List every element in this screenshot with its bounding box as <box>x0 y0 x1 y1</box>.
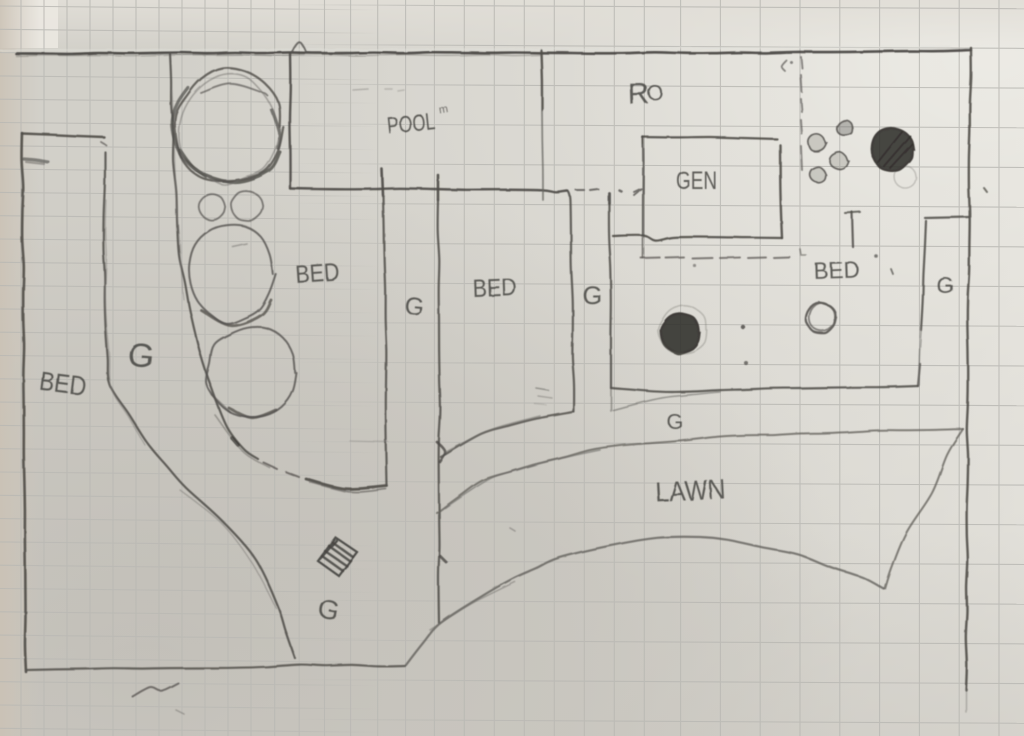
svg-text:BED: BED <box>294 258 340 289</box>
svg-text:G: G <box>403 292 425 322</box>
svg-text:LAWN: LAWN <box>655 473 727 508</box>
svg-text:BED: BED <box>472 273 517 303</box>
svg-text:G: G <box>126 336 156 376</box>
svg-text:BED: BED <box>813 256 860 284</box>
svg-text:G: G <box>936 272 954 298</box>
svg-text:O: O <box>646 81 663 105</box>
svg-text:POOL: POOL <box>386 108 437 140</box>
svg-text:G: G <box>582 280 602 310</box>
svg-text:GEN: GEN <box>676 167 717 195</box>
svg-text:BED: BED <box>38 366 87 401</box>
svg-text:G: G <box>667 411 683 434</box>
